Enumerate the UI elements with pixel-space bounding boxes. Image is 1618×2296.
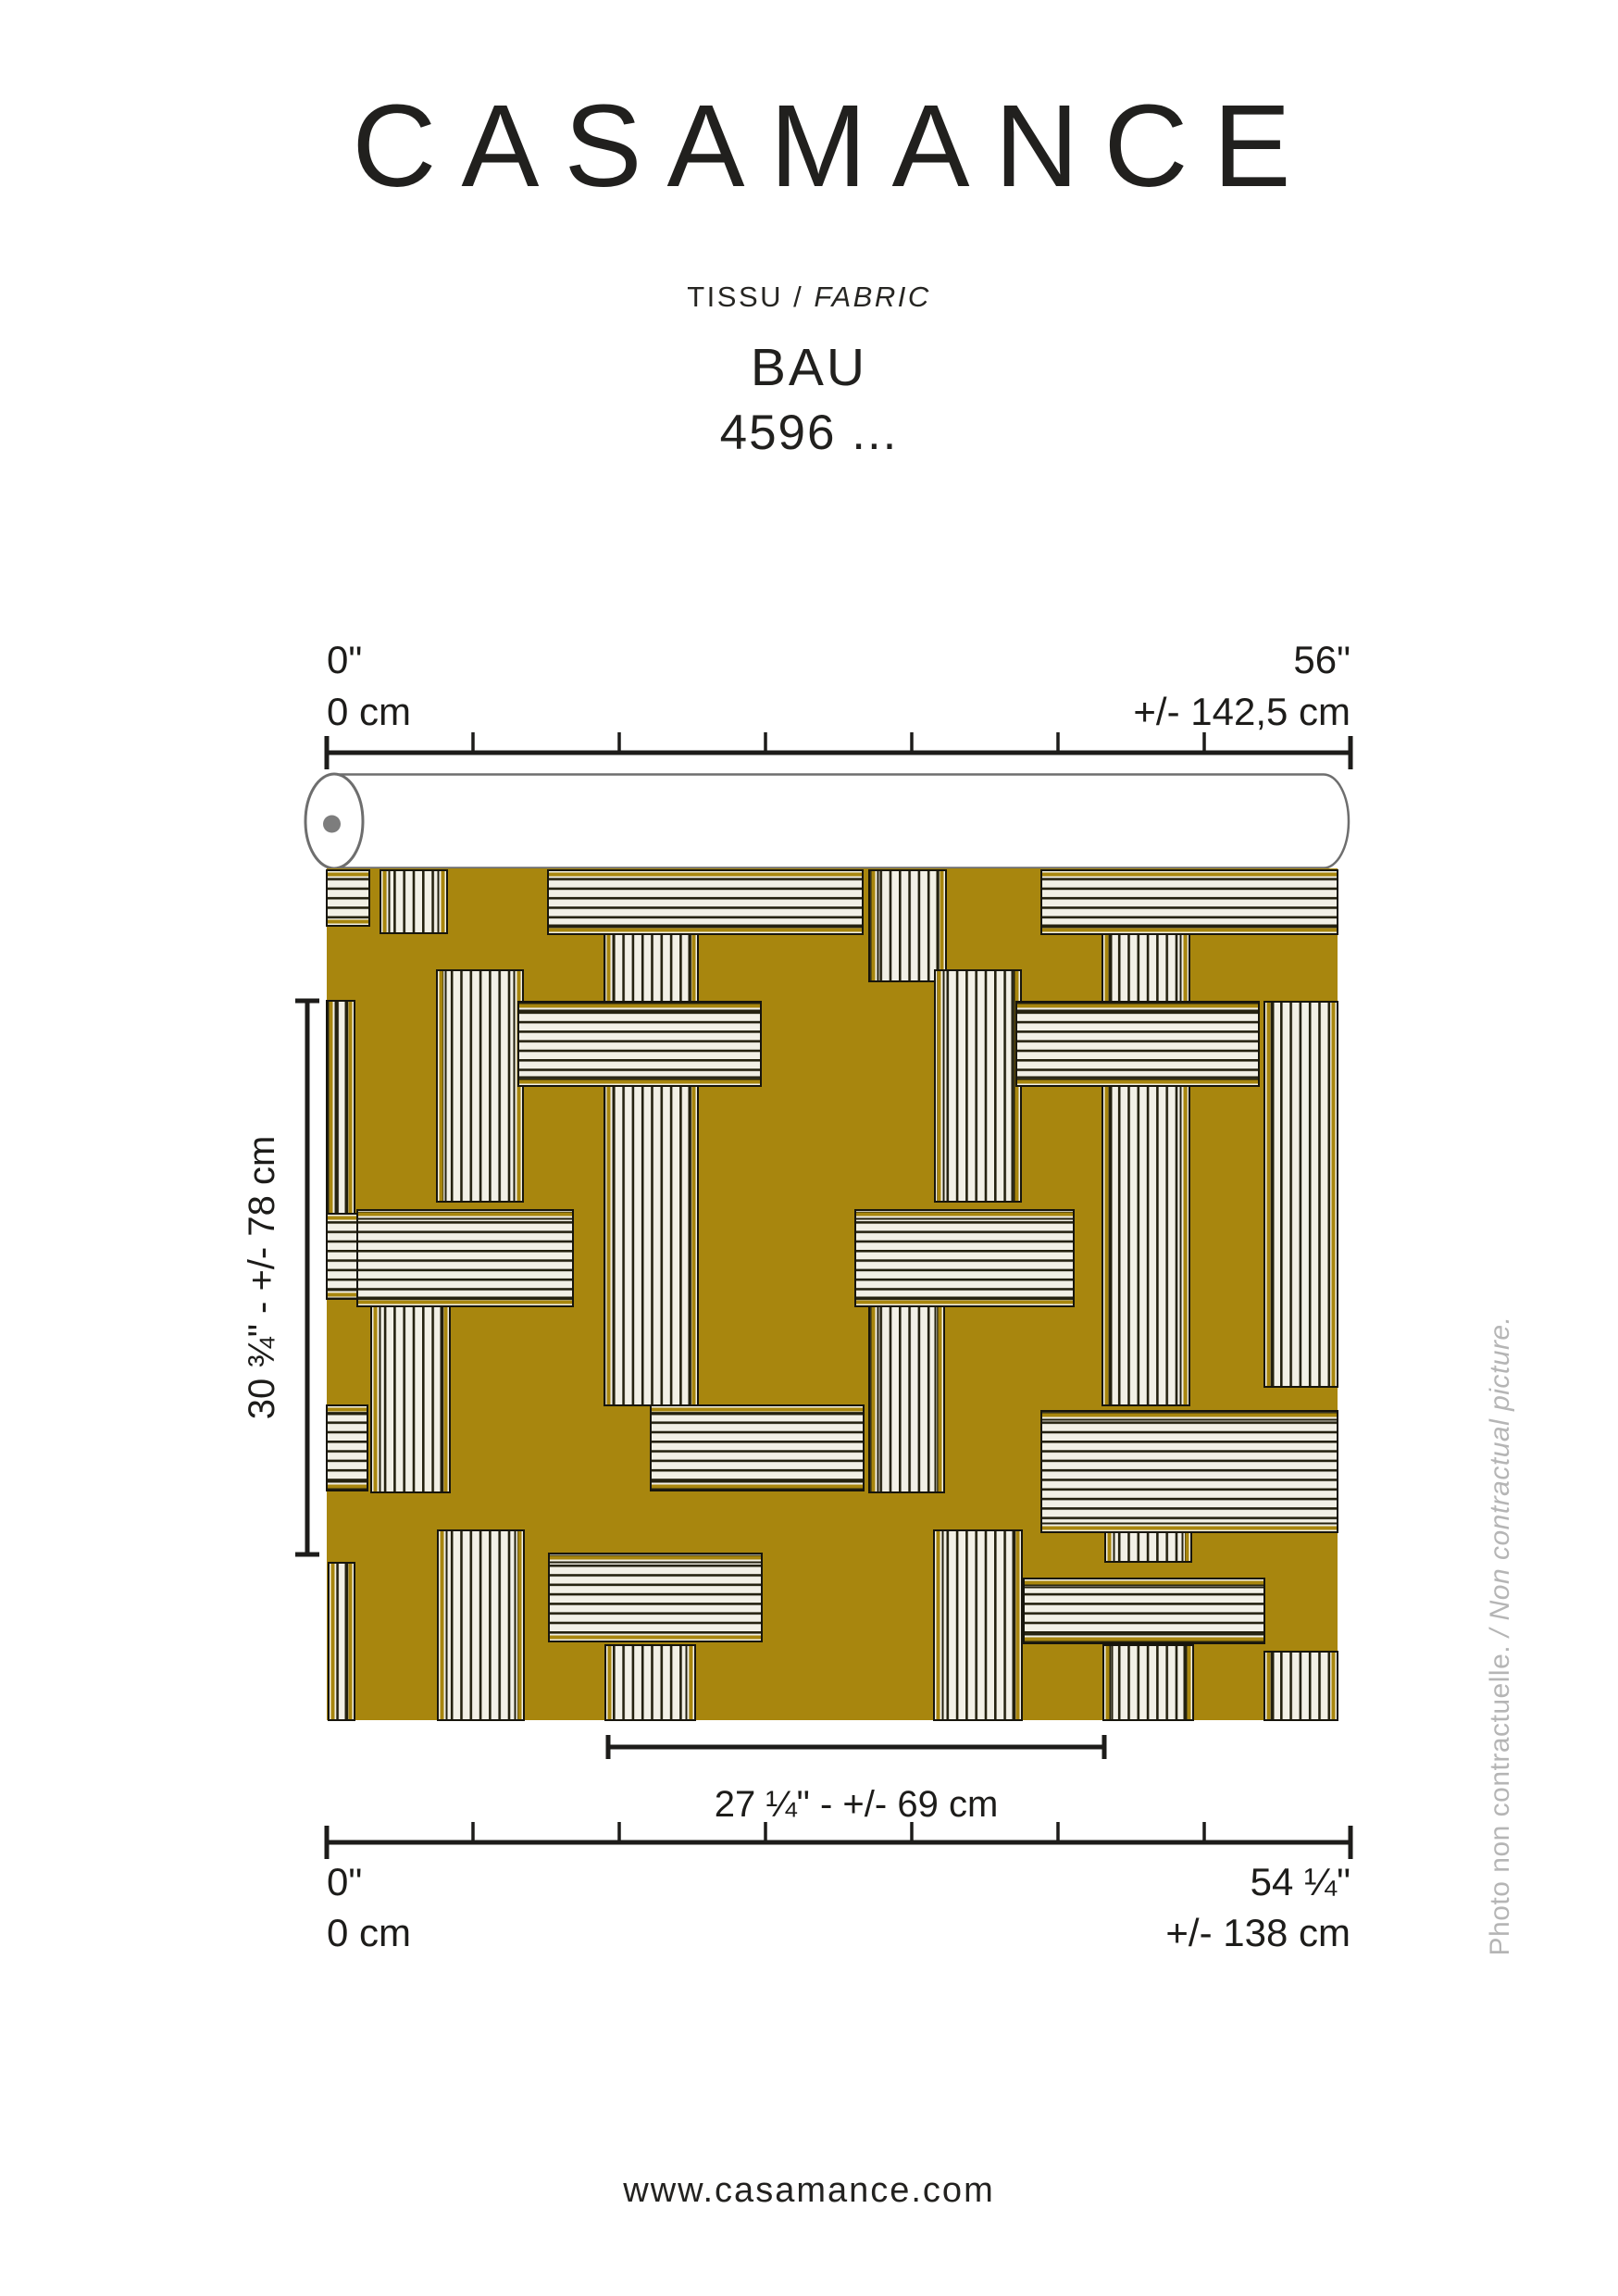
fabric-block-detail — [382, 871, 386, 932]
fabric-block-detail — [442, 871, 445, 932]
fabric-ruler-right-inches: 54 ¼" — [1251, 1860, 1350, 1903]
fabric-block-detail — [519, 1080, 760, 1084]
fabric-block-detail — [1332, 1003, 1336, 1386]
fabric-block-detail — [1025, 1634, 1263, 1636]
fabric-block-detail — [549, 878, 862, 880]
fabric-block-detail — [1042, 1413, 1337, 1416]
fabric-block-detail — [877, 1307, 878, 1491]
note-separator: / — [1485, 1620, 1515, 1645]
fabric-roll — [305, 774, 1349, 868]
fabric-block-detail — [871, 1307, 875, 1491]
fabric-block-detail — [358, 1301, 572, 1304]
fabric-block-detail — [1104, 929, 1108, 1404]
fabric-block-detail — [689, 929, 691, 1404]
fabric-stripe-block — [651, 1405, 864, 1491]
fabric-block-detail — [652, 1407, 863, 1411]
fabric-block-detail — [439, 971, 442, 1201]
fabric-block-detail — [373, 1307, 377, 1491]
fabric-block-detail — [358, 1212, 572, 1216]
fabric-block-detail — [856, 1217, 1073, 1219]
fabric-block-detail — [328, 1485, 367, 1489]
fabric-stripe-block — [1016, 1002, 1259, 1086]
fabric-stripe-block — [327, 1405, 367, 1491]
fabric-block-detail — [856, 1301, 1073, 1304]
fabric-block-detail — [1042, 872, 1337, 876]
vertical-repeat-label: 30 ¾" - +/- 78 cm — [242, 1136, 282, 1420]
fabric-block-detail — [444, 1307, 448, 1491]
fabric-block-detail — [445, 1531, 447, 1719]
fabric-block-detail — [549, 925, 862, 927]
fabric-block-detail — [941, 1531, 943, 1719]
fabric-block-detail — [328, 920, 368, 924]
fabric-block-detail — [935, 1307, 937, 1491]
fabric-stripe-block — [371, 1306, 450, 1492]
fabric-block-detail — [328, 1413, 367, 1415]
fabric-ruler-ticks — [473, 1822, 1204, 1841]
fabric-block-detail — [1042, 929, 1337, 932]
roll-ruler-ticks — [473, 732, 1204, 751]
fabric-pattern — [327, 868, 1338, 1720]
spec-sheet-page: CASAMANCE TISSU / FABRIC BAU 4596 ... 0"… — [0, 0, 1618, 2296]
fabric-block-detail — [514, 971, 516, 1201]
fabric-block-detail — [515, 1531, 517, 1719]
fabric-block-detail — [550, 1632, 761, 1634]
fabric-block-detail — [1332, 1653, 1336, 1719]
fabric-block-detail — [686, 1646, 688, 1719]
fabric-block-detail — [606, 929, 610, 1404]
fabric-block-detail — [329, 1002, 332, 1213]
horizontal-repeat-measure: 27 ¼" - +/- 69 cm — [608, 1735, 1104, 1825]
non-contractual-note: Photo non contractuelle. / Non contractu… — [1485, 1316, 1516, 1956]
category-label-en: FABRIC — [814, 281, 930, 313]
fabric-block-detail — [871, 871, 875, 980]
category-subtitle: TISSU / FABRIC — [0, 281, 1618, 314]
fabric-block-detail — [940, 871, 944, 980]
fabric-stripe-block — [869, 870, 946, 981]
fabric-block-detail — [1266, 1653, 1270, 1719]
roll-ruler-left-cm: 0 cm — [327, 690, 411, 733]
roll-ruler-right-cm: +/- 142,5 cm — [1133, 690, 1350, 733]
roll-ruler-right-inches: 56" — [1293, 638, 1350, 681]
fabric-roll-diagram: 0" 0 cm 56" +/- 142,5 cm 30 ¾" - +/- 78 … — [0, 602, 1618, 1972]
fabric-block-detail — [519, 1009, 760, 1011]
product-name: BAU — [0, 337, 1618, 398]
fabric-block-detail — [1017, 1009, 1258, 1011]
fabric-block-detail — [1017, 1080, 1258, 1084]
fabric-block-detail — [1016, 1531, 1020, 1719]
fabric-block-detail — [1025, 1638, 1263, 1641]
fabric-block-detail — [550, 1636, 761, 1640]
vertical-repeat-measure: 30 ¾" - +/- 78 cm — [242, 1001, 319, 1554]
fabric-stripe-block — [855, 1210, 1074, 1306]
fabric-block-detail — [1184, 929, 1188, 1404]
fabric-block-detail — [345, 1564, 347, 1719]
fabric-stripe-block — [1102, 928, 1189, 1405]
fabric-stripe-block — [549, 1554, 762, 1641]
fabric-block-detail — [328, 917, 368, 918]
category-label-fr: TISSU / — [687, 281, 814, 313]
note-fr: Photo non contractuelle. — [1485, 1645, 1515, 1956]
fabric-block-detail — [692, 929, 696, 1404]
fabric-block-detail — [1111, 1646, 1113, 1719]
fabric-block-detail — [441, 1307, 442, 1491]
fabric-block-detail — [379, 1307, 380, 1491]
fabric-block-detail — [519, 1077, 760, 1079]
fabric-block-detail — [336, 1564, 338, 1719]
fabric-ruler-left-inches: 0" — [327, 1860, 362, 1903]
fabric-stripe-block — [438, 1530, 524, 1720]
fabric-stripe-block — [1264, 1002, 1338, 1387]
fabric-block-detail — [1184, 1646, 1186, 1719]
fabric-block-detail — [877, 871, 878, 980]
fabric-block-detail — [328, 872, 368, 876]
fabric-block-detail — [550, 1561, 761, 1563]
fabric-stripe-block — [934, 1530, 1022, 1720]
fabric-block-detail — [1025, 1580, 1263, 1584]
fabric-block-detail — [1110, 929, 1112, 1404]
roll-core-dot — [323, 816, 341, 833]
fabric-block-detail — [607, 1646, 611, 1719]
fabric-stripe-block — [935, 970, 1021, 1202]
fabric-block-detail — [690, 1646, 693, 1719]
fabric-block-detail — [549, 872, 862, 876]
fabric-block-detail — [652, 1481, 863, 1483]
fabric-block-detail — [349, 1002, 353, 1213]
fabric-stripe-block — [357, 1210, 573, 1306]
fabric-block-detail — [1105, 1646, 1109, 1719]
fabric-stripe-block — [380, 870, 447, 933]
fabric-stripe-block — [605, 1645, 695, 1720]
fabric-block-detail — [1328, 1003, 1330, 1386]
fabric-block-detail — [939, 1307, 942, 1491]
fabric-block-detail — [438, 871, 440, 932]
fabric-block-detail — [856, 1212, 1073, 1216]
fabric-block-detail — [652, 1485, 863, 1489]
fabric-block-detail — [652, 1413, 863, 1415]
fabric-stripe-block — [1024, 1578, 1264, 1643]
website-url: www.casamance.com — [0, 2171, 1618, 2211]
fabric-block-detail — [613, 1646, 615, 1719]
roll-body — [334, 775, 1349, 868]
note-en: Non contractual picture. — [1485, 1316, 1515, 1621]
fabric-block-detail — [1180, 929, 1182, 1404]
fabric-block-detail — [388, 871, 390, 932]
product-reference: 4596 ... — [0, 405, 1618, 461]
fabric-stripe-block — [604, 928, 698, 1405]
roll-ruler-left-inches: 0" — [327, 638, 362, 681]
roll-width-ruler: 0" 0 cm 56" +/- 142,5 cm — [327, 638, 1350, 769]
fabric-stripe-block — [869, 1306, 944, 1492]
fabric-block-detail — [1272, 1003, 1274, 1386]
fabric-block-detail — [1017, 1077, 1258, 1079]
horizontal-repeat-label: 27 ¼" - +/- 69 cm — [715, 1784, 999, 1825]
fabric-block-detail — [1013, 1531, 1014, 1719]
fabric-block-detail — [358, 1217, 572, 1219]
fabric-block-detail — [937, 971, 940, 1201]
fabric-block-detail — [856, 1297, 1073, 1299]
fabric-block-detail — [328, 878, 368, 880]
fabric-stripe-block — [1103, 1645, 1193, 1720]
fabric-ruler-left-cm: 0 cm — [327, 1911, 411, 1954]
fabric-block-detail — [1328, 1653, 1330, 1719]
fabric-block-detail — [937, 871, 939, 980]
fabric-block-detail — [1042, 1418, 1337, 1420]
fabric-block-detail — [444, 971, 446, 1201]
fabric-block-detail — [440, 1531, 443, 1719]
fabric-block-detail — [549, 929, 862, 932]
fabric-width-ruler: 0" 0 cm 54 ¼" +/- 138 cm — [327, 1822, 1350, 1954]
fabric-block-detail — [1272, 1653, 1274, 1719]
fabric-stripe-block — [518, 1002, 761, 1086]
fabric-block-detail — [1042, 1527, 1337, 1530]
fabric-block-detail — [550, 1555, 761, 1559]
fabric-block-detail — [358, 1297, 572, 1299]
fabric-stripe-block — [1264, 1652, 1338, 1720]
fabric-block-detail — [612, 929, 614, 1404]
fabric-ruler-right-cm: +/- 138 cm — [1165, 1911, 1350, 1954]
fabric-block-detail — [328, 1481, 367, 1483]
fabric-block-detail — [1266, 1003, 1270, 1386]
fabric-block-detail — [936, 1531, 940, 1719]
brand-logo: CASAMANCE — [0, 88, 1618, 205]
fabric-block-detail — [1042, 925, 1337, 927]
fabric-block-detail — [1042, 878, 1337, 880]
fabric-block-detail — [1188, 1646, 1191, 1719]
fabric-block-detail — [1042, 1523, 1337, 1525]
fabric-block-detail — [334, 1002, 336, 1213]
fabric-block-detail — [518, 1531, 522, 1719]
fabric-block-detail — [942, 971, 944, 1201]
fabric-block-detail — [345, 1002, 347, 1213]
fabric-block-detail — [1025, 1586, 1263, 1588]
fabric-block-detail — [349, 1564, 353, 1719]
fabric-block-detail — [328, 1407, 367, 1411]
fabric-stripe-block — [437, 970, 523, 1202]
fabric-block-detail — [330, 1564, 334, 1719]
fabric-block-detail — [519, 1004, 760, 1007]
fabric-block-detail — [1012, 971, 1014, 1201]
fabric-stripe-block — [1041, 1411, 1338, 1532]
fabric-block-detail — [1017, 1004, 1258, 1007]
